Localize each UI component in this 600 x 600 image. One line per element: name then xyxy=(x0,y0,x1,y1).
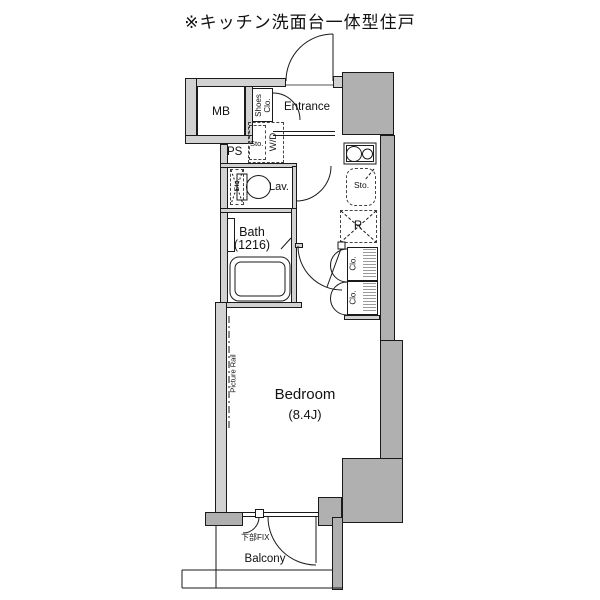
washer-dryer-label: W/D xyxy=(266,130,282,154)
bedroom-size: (8.4J) xyxy=(288,407,321,422)
sink-bowl xyxy=(363,149,373,159)
kitchen-storage-label: Sto. xyxy=(354,181,369,190)
refrigerator-label: R xyxy=(349,218,367,234)
bath-name: Bath xyxy=(239,225,265,239)
closet-bifold-arc xyxy=(331,249,348,282)
entrance-label: Entrance xyxy=(284,101,330,113)
washroom-door-arc xyxy=(296,166,331,201)
bedroom-door-arc xyxy=(298,246,342,290)
lower-fix-label: 下部FIX xyxy=(241,534,269,542)
wd-storage-label: Sto. xyxy=(250,140,263,148)
door-hinge xyxy=(338,242,345,249)
bathtub xyxy=(230,257,290,301)
fixture-layer xyxy=(0,0,600,600)
closet-hatch xyxy=(363,249,376,279)
closet-lower-label: Clo. xyxy=(349,288,360,308)
wall xyxy=(292,166,297,210)
wall xyxy=(220,163,297,168)
door-handle xyxy=(255,509,264,518)
plan-title: ※キッチン洗面台一体型住戸 xyxy=(0,8,600,33)
mb-label: MB xyxy=(197,86,245,136)
bath-size: (1216) xyxy=(234,238,270,252)
sink-bowl xyxy=(347,147,362,162)
wall xyxy=(220,208,297,213)
closet-hatch xyxy=(363,283,376,313)
closet-upper-label: Clo. xyxy=(349,254,360,274)
balcony-label: Balcony xyxy=(235,553,295,565)
kitchen-sink-inner xyxy=(347,146,374,162)
wall xyxy=(380,135,395,341)
kitchen-sink xyxy=(344,143,376,164)
wall xyxy=(295,243,303,248)
wall xyxy=(185,135,253,144)
bedroom-label: Bedroom (8.4J) xyxy=(240,385,370,424)
wall xyxy=(205,512,243,526)
bedroom-door-leaf xyxy=(327,246,342,287)
wall xyxy=(215,302,302,308)
wall xyxy=(344,315,380,320)
lav-storage-label: Sto. xyxy=(231,175,243,195)
bedroom-name: Bedroom xyxy=(275,386,336,403)
wall xyxy=(332,517,343,590)
entrance-door-arc xyxy=(286,34,333,81)
bath-label: Bath (1216) xyxy=(221,226,283,252)
bathtub-inner xyxy=(235,262,285,296)
wall xyxy=(215,302,227,513)
lavatory-label: Lav. xyxy=(269,182,289,194)
floor-plan: ※キッチン洗面台一体型住戸 xyxy=(0,0,600,600)
toilet-bowl xyxy=(247,176,271,199)
ps-label: PS xyxy=(227,146,242,158)
closet-bifold-arc xyxy=(331,282,348,315)
wall xyxy=(380,340,403,462)
fix-window-arc xyxy=(243,517,259,533)
shoes-closet-label: Shoes Clo. xyxy=(253,87,274,124)
wall xyxy=(342,72,394,135)
wall xyxy=(342,458,403,523)
wall xyxy=(291,208,297,308)
picture-rail-label: Picture Rail xyxy=(228,349,239,399)
